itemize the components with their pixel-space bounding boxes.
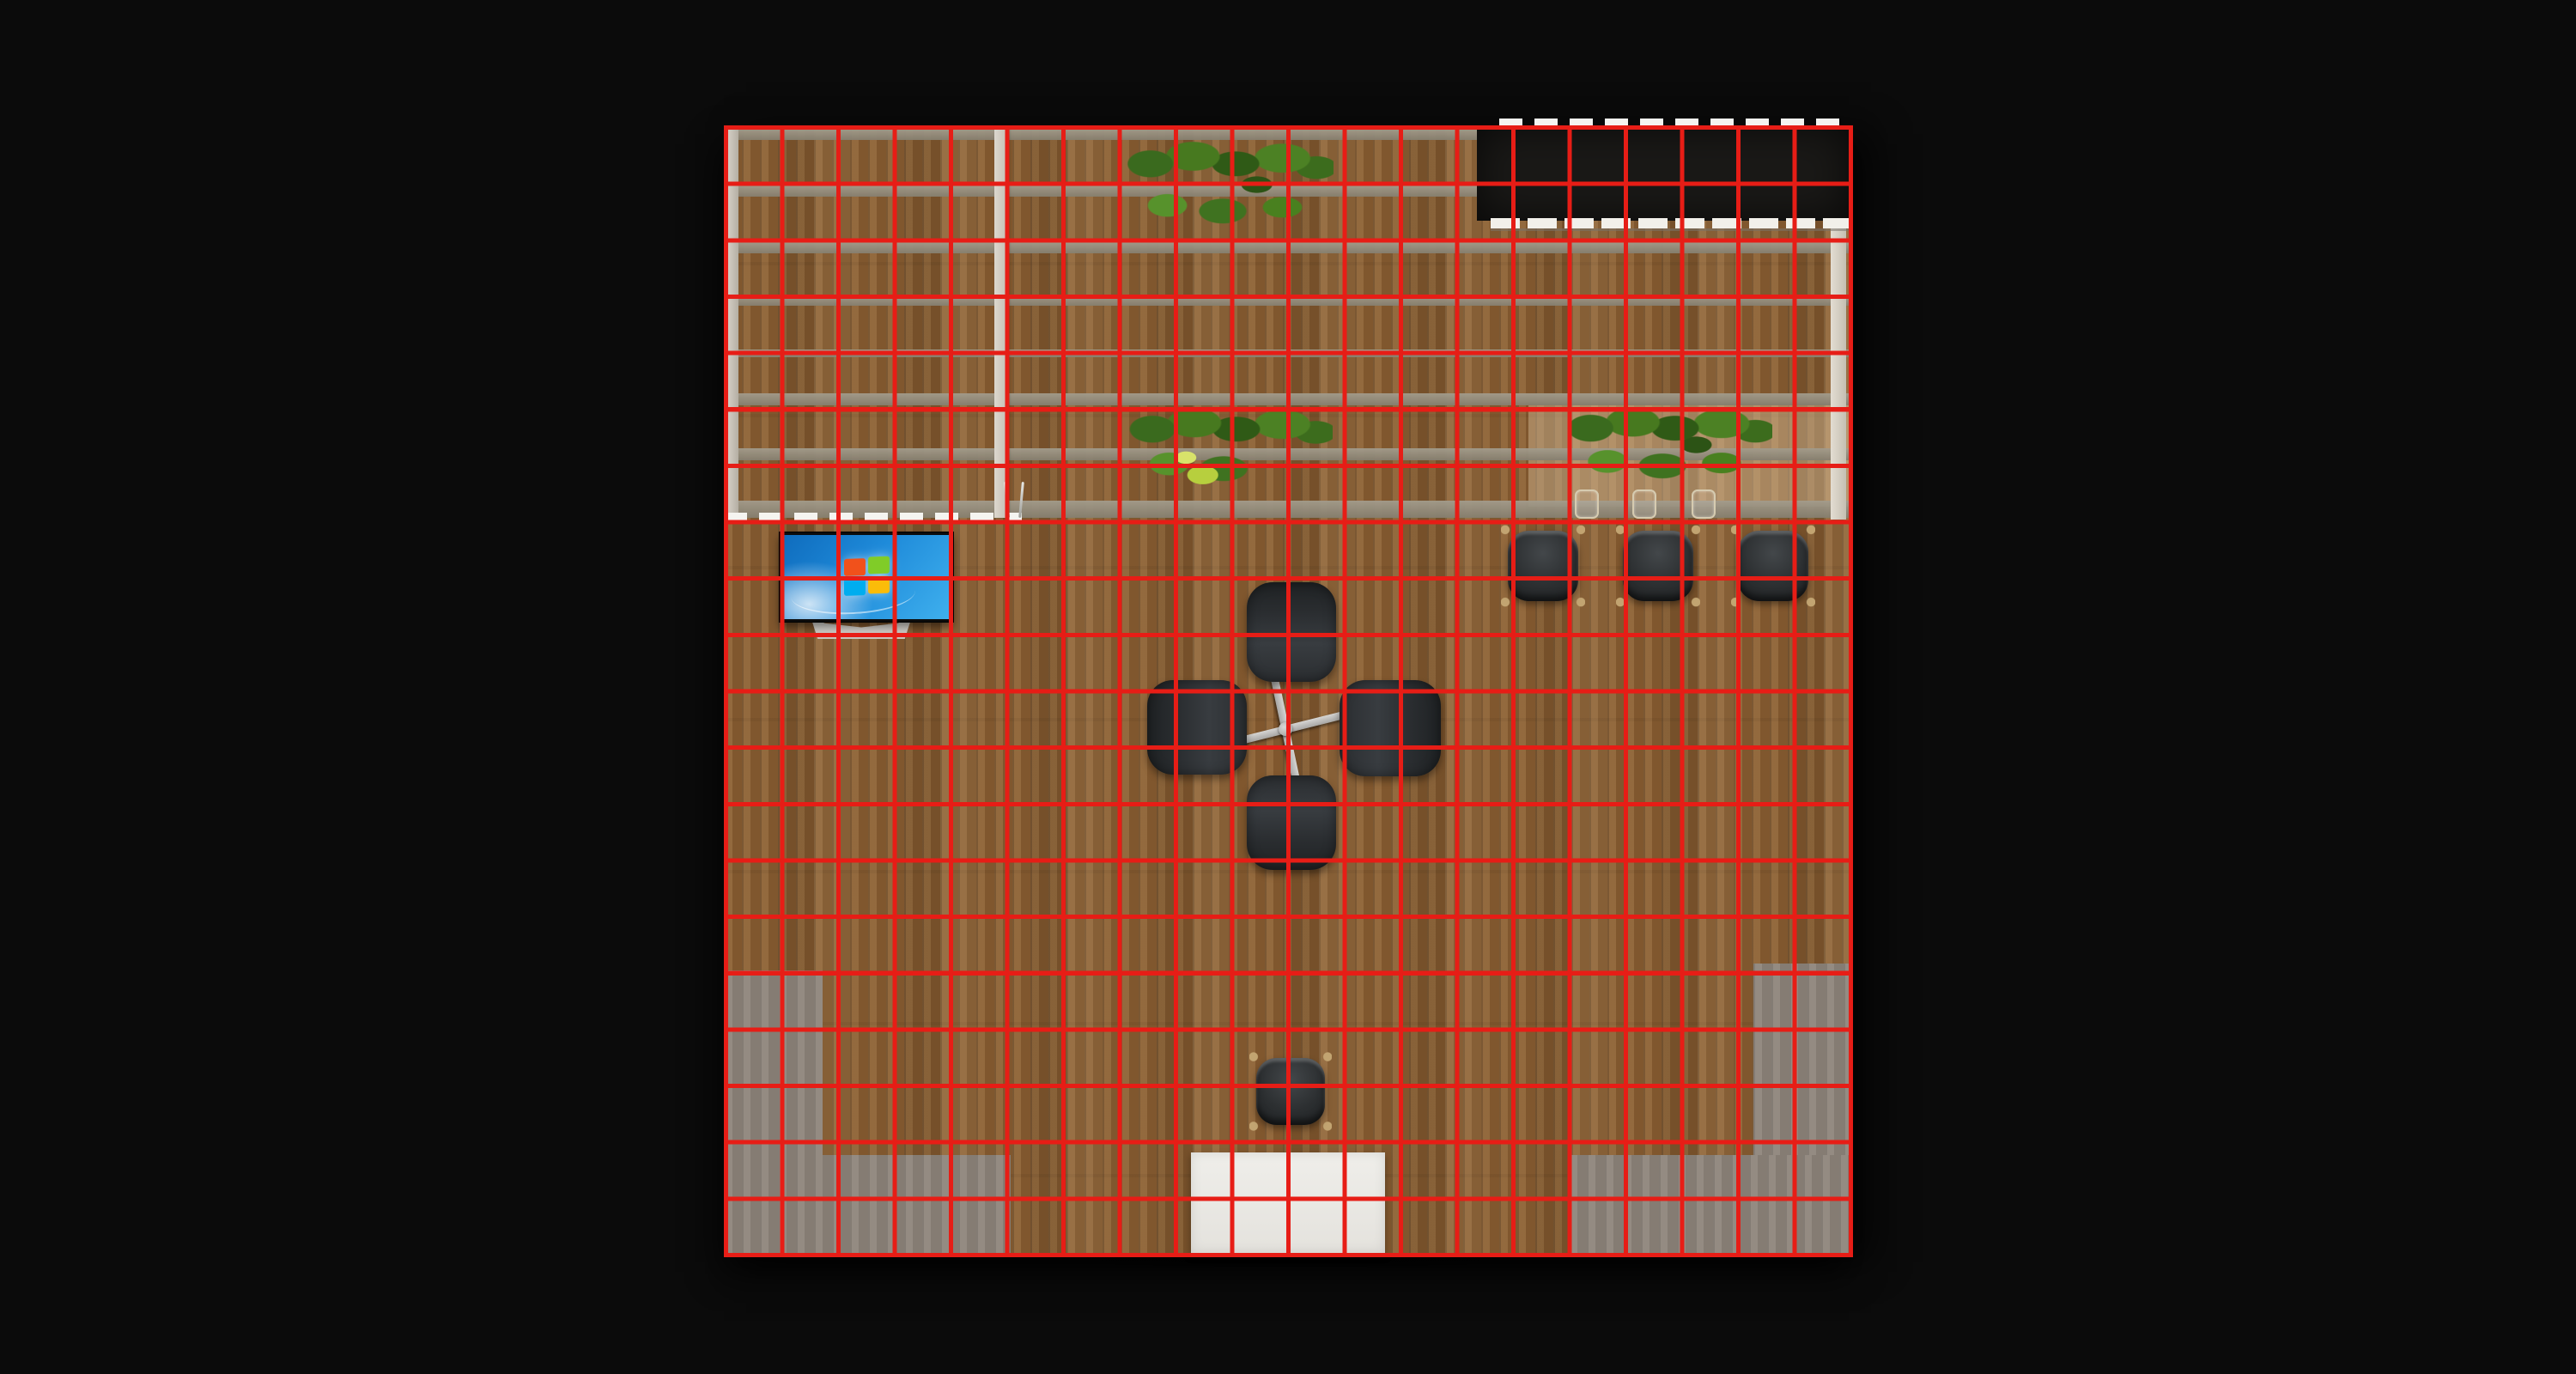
windows-logo-icon — [844, 556, 889, 596]
lounge-chair-north — [1247, 582, 1336, 682]
left-wall — [724, 125, 738, 518]
door-handles — [1003, 482, 1025, 518]
gray-floor-bottom-left — [724, 1155, 1011, 1253]
counter-beam — [724, 242, 1849, 253]
bar-chair — [1731, 524, 1815, 608]
dashed-marking-top — [1499, 119, 1848, 125]
logo-pane-green — [868, 556, 890, 574]
screenshot-canvas: { "scene": { "description": "top-down or… — [0, 0, 2576, 1374]
counter-beam — [724, 295, 1849, 306]
logo-pane-blue — [844, 578, 866, 595]
counter-beam — [724, 350, 1849, 357]
black-floor-mat — [1477, 125, 1849, 221]
plant-middle — [1123, 407, 1333, 486]
counter-glass — [1575, 489, 1599, 519]
counter-beam — [724, 393, 1849, 405]
plant-right — [1561, 407, 1772, 483]
room — [724, 125, 1849, 1253]
counter-glass — [1692, 489, 1716, 519]
lounge-chair-west — [1147, 680, 1247, 775]
white-desk — [1191, 1152, 1385, 1253]
logo-pane-yellow — [868, 575, 890, 593]
bar-chair — [1501, 524, 1585, 608]
divider-wall — [994, 125, 1007, 518]
lounge-chair-south — [1247, 775, 1336, 870]
gray-floor-bottom-right — [1569, 1155, 1849, 1253]
bar-chair — [1616, 524, 1700, 608]
plant-top — [1121, 137, 1334, 232]
notched-marking — [1491, 218, 1849, 228]
floor-shadow — [734, 1253, 1847, 1277]
desk-chair — [1249, 1051, 1332, 1132]
dashed-marking-middle — [724, 513, 1022, 521]
lounge-chair-east — [1340, 680, 1441, 776]
right-wall — [1831, 221, 1846, 520]
monitor-screen — [780, 532, 953, 622]
counter-glass — [1632, 489, 1656, 519]
scene — [0, 0, 2576, 1374]
logo-pane-red — [844, 558, 866, 575]
